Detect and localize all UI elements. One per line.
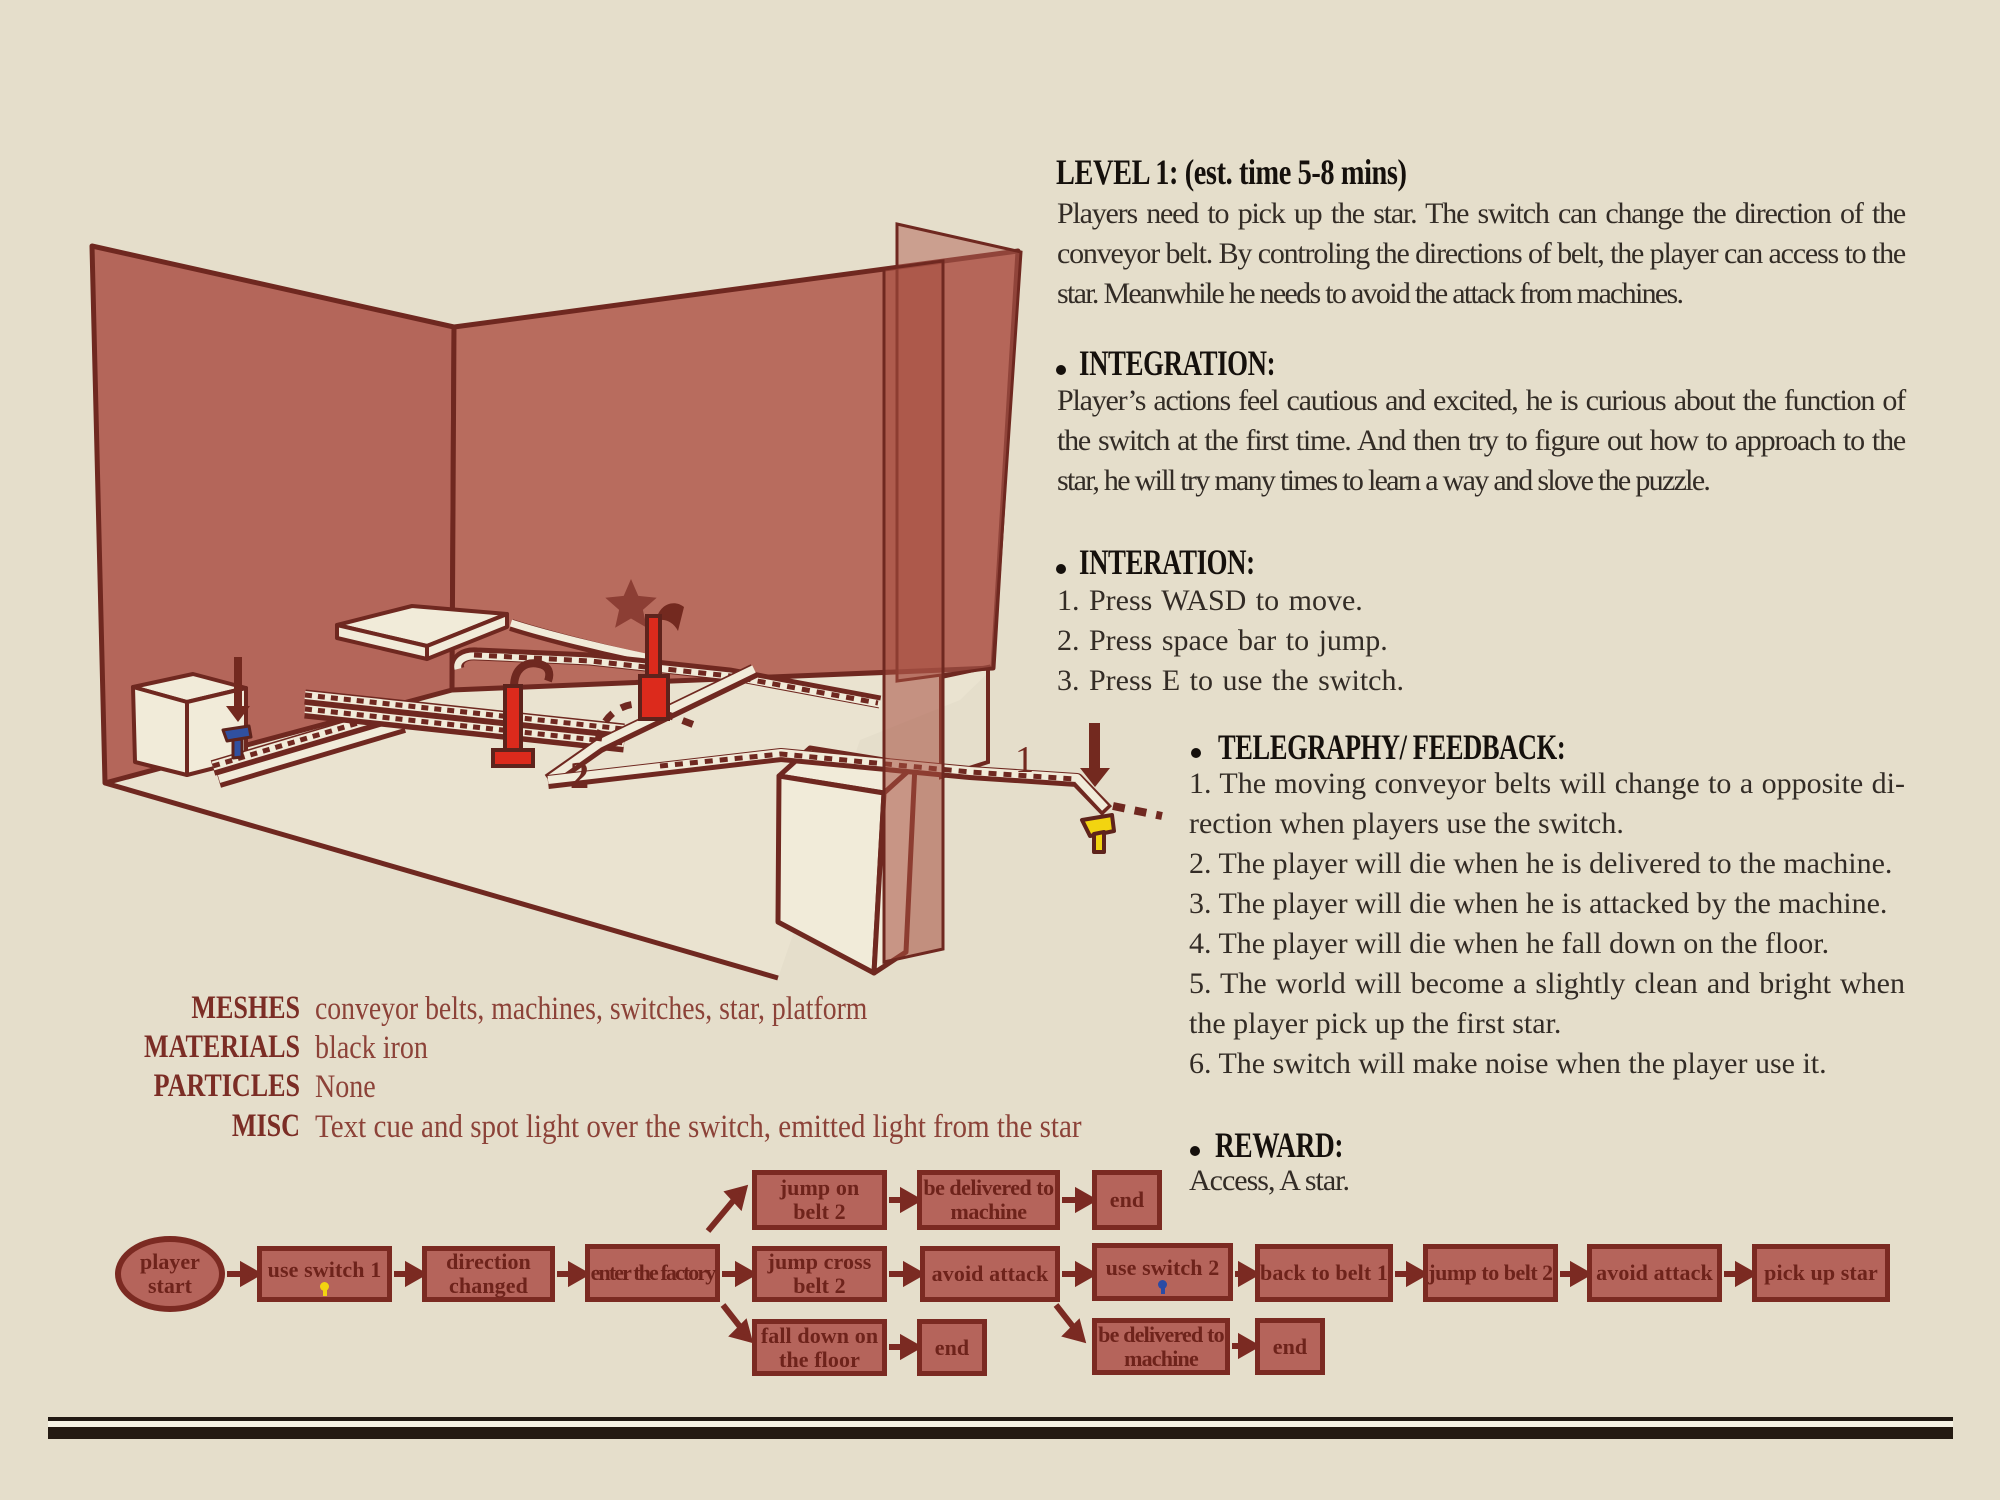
svg-text:1: 1	[1015, 739, 1034, 781]
svg-text:2: 2	[570, 755, 589, 797]
